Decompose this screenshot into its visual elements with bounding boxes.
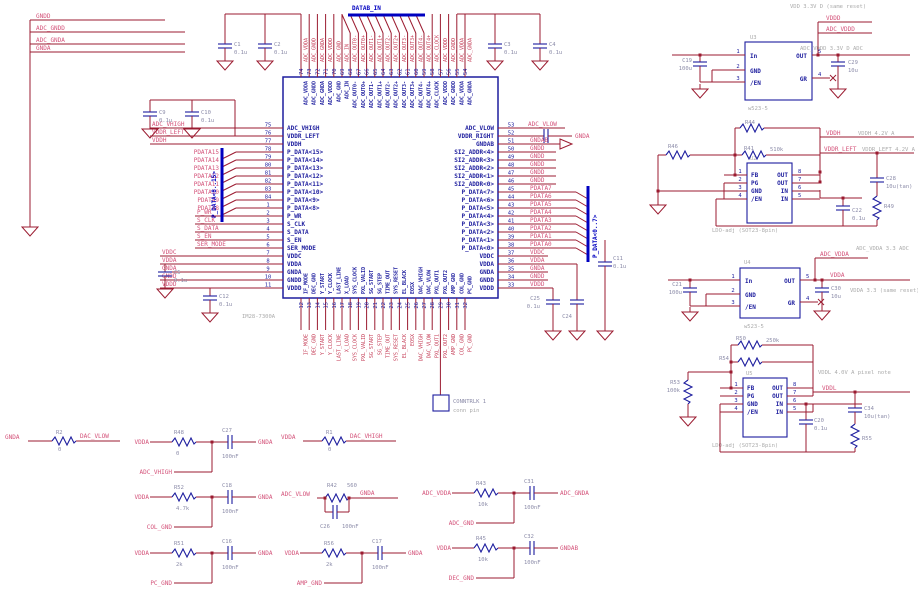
note: ADC_VDDD 3.3V D ADC: [800, 46, 863, 52]
ground-symbol: [184, 129, 200, 138]
ground-symbol: [217, 61, 233, 70]
net-label: Y_START: [320, 334, 326, 355]
value: 100nF: [524, 505, 541, 511]
resistor[interactable]: [52, 437, 76, 445]
net-label: VDDA: [135, 439, 150, 446]
pin-name: FB: [747, 385, 755, 392]
net-label: SYS_CLOCK: [353, 334, 359, 361]
net-label: PDATA5: [530, 201, 552, 208]
net-label: PDATA15: [194, 149, 220, 156]
resistor[interactable]: [684, 380, 692, 404]
pin-name: ADC_OUT0-: [353, 81, 359, 108]
ground-symbol: [487, 61, 503, 70]
pin-name: ADC_OUT0+: [361, 81, 367, 108]
pin-name: ADC_GND: [336, 81, 342, 102]
refdes: C10: [201, 110, 211, 116]
pin-name: OUT: [772, 393, 783, 400]
pin-number: 23: [389, 302, 395, 309]
net-label: PDATA6: [530, 193, 552, 200]
pin-number: 68: [348, 68, 354, 75]
resistor[interactable]: [172, 438, 196, 446]
pin-number: 3: [738, 185, 741, 191]
net-label: VDDA: [135, 494, 150, 501]
pin-name: SI2_ADDR<1>: [454, 173, 494, 180]
net-label: GNDD: [36, 13, 51, 20]
note: VDDL 4.0V A pixel note: [818, 370, 891, 376]
refdes: C18: [222, 483, 232, 489]
pin-number: 2: [734, 390, 737, 396]
pin-number: 46: [508, 179, 515, 185]
pin-number: 82: [265, 179, 272, 185]
refdes: C26: [320, 524, 330, 530]
net-label: DAC_VHIGH: [350, 433, 383, 440]
refdes: C12: [219, 294, 229, 300]
pin-name: ADC_VDDA: [459, 81, 465, 105]
net-label: TIME_OUT: [386, 334, 392, 358]
pin-name: EL_BLACK: [402, 270, 408, 294]
wire: [400, 15, 408, 33]
pin-name: P_DATA<13>: [287, 165, 324, 172]
net-label: ADC_OUT4+: [427, 35, 433, 62]
net-label: PDATA7: [530, 185, 552, 192]
pin-number: 70: [332, 68, 338, 75]
net-label: PDATA2: [530, 225, 552, 232]
pin-number: 61: [406, 68, 412, 75]
pin-name: GR: [800, 76, 808, 83]
net-label: VDDH: [152, 137, 167, 144]
net-label: GNDA: [360, 490, 375, 497]
pin-number: 52: [508, 131, 515, 137]
value: 0.1u: [613, 264, 626, 270]
net-label: DAC_VLOW: [80, 433, 109, 440]
pin-number: 71: [324, 68, 330, 75]
pin-number: 48: [508, 163, 515, 169]
net-label: PDATA13: [194, 165, 220, 172]
pin-number: 76: [265, 131, 272, 137]
value: 510k: [770, 147, 784, 153]
pin-name: GNDA: [287, 269, 302, 276]
ground-symbol: [157, 289, 173, 298]
pin-name: ADC_OUT4-: [418, 81, 424, 108]
pin-name: PC_GND: [468, 276, 474, 294]
net-label: ADC_VDDA: [820, 251, 849, 258]
refdes: C9: [159, 110, 166, 116]
net-label: SYS_RESET: [394, 334, 400, 361]
value: 100nF: [222, 565, 239, 571]
value: 10u: [831, 294, 841, 300]
pin-number: 66: [365, 68, 371, 75]
pin-name: IN: [781, 188, 789, 195]
pin-name: ADC_VHIGH: [287, 125, 320, 132]
net-label: ADC_VDDD: [328, 38, 334, 62]
pin-name: SI2_ADDR<0>: [454, 181, 494, 188]
pin-number: 5: [798, 193, 801, 199]
schematic-sheet: GNDDADC_GNDDADC_GNDAGNDAC10.1uC20.1uC30.…: [0, 0, 918, 607]
pin-number: 25: [406, 302, 412, 309]
pin-number: 56: [447, 68, 453, 75]
value: 0: [58, 447, 61, 453]
ic-right-pins: 53ADC_VLOWADC_VLOW52VDDR_RIGHTGNDA51GNDA…: [454, 121, 626, 340]
pin-number: 18: [348, 302, 354, 309]
connector[interactable]: [433, 395, 449, 411]
refdes: R41: [744, 146, 754, 152]
net-label: PXL_OUT2: [443, 334, 449, 358]
pin-number: 10: [265, 275, 272, 281]
regulator-a[interactable]: U3w523-51In2GND3/EN5OUT4GRC19100uC2910uV…: [672, 4, 910, 112]
value: 10k: [478, 557, 489, 563]
net-label: PC_GND: [150, 580, 172, 587]
resistor[interactable]: [325, 494, 349, 502]
pin-number: 7: [793, 390, 796, 396]
value: 0.1u: [174, 278, 187, 284]
net-label: ADC_GNDA: [320, 38, 326, 62]
pin-name: ADC_GNDD: [312, 81, 318, 105]
refdes: C22: [852, 208, 862, 214]
pin-number: 9: [266, 267, 269, 273]
pin-number: 1: [736, 49, 739, 55]
resistor[interactable]: [738, 341, 762, 349]
pin-number: 51: [508, 139, 515, 145]
pin-name: VDDD: [480, 285, 495, 292]
resistor[interactable]: [172, 493, 196, 501]
refdes: R46: [668, 144, 678, 150]
pin-number: 1: [731, 274, 734, 280]
refdes: C34: [864, 406, 875, 412]
refdes: C17: [372, 539, 382, 545]
pin-name: SYS_CLOCK: [353, 267, 359, 294]
refdes: C11: [613, 256, 623, 262]
net-label: GNDA: [258, 439, 273, 446]
pin-number: 63: [389, 68, 395, 75]
net-label: GNDD: [530, 153, 545, 160]
wire: [367, 15, 375, 33]
wire: [350, 15, 358, 33]
value: 0.1u: [549, 50, 562, 56]
ic-left-pins: 75ADC_VHIGHADC_VHIGH76VDDR_LEFTVDDR_LEFT…: [142, 100, 324, 322]
resistor[interactable]: [322, 437, 346, 445]
refdes: C3: [504, 42, 511, 48]
pin-name: In: [750, 53, 758, 60]
pin-name: P_DATA<9>: [287, 197, 320, 204]
refdes: C20: [814, 418, 824, 424]
pin-name: VDDR_RIGHT: [458, 133, 495, 140]
ground-symbol: [22, 227, 38, 236]
junction: [730, 387, 733, 390]
pin-number: 69: [340, 68, 346, 75]
junction: [734, 174, 737, 177]
ic-part-number: IM28-7300A: [242, 314, 276, 320]
refdes: C2: [274, 42, 281, 48]
pin-name: S_EN: [287, 237, 302, 244]
net-label: SG_START: [369, 334, 375, 358]
pin-number: 27: [422, 302, 428, 309]
net-label: ADC_VDDD: [826, 26, 855, 33]
refdes: R56: [324, 541, 334, 547]
net-label: ADC_GNDA: [560, 490, 589, 497]
resistor[interactable]: [666, 151, 690, 159]
net-label: VDDA: [162, 257, 177, 264]
pin-number: 3: [734, 398, 737, 404]
pin-number: 5: [806, 274, 809, 280]
pin-name: DEC_GND: [312, 273, 318, 294]
wire: [408, 15, 416, 33]
net-label: COL_GND: [459, 334, 465, 355]
refdes: R44: [745, 120, 756, 126]
value: 10u: [848, 68, 858, 74]
net-label: DAC_VLOW: [427, 333, 433, 358]
wire: [576, 216, 588, 223]
pin-number: 39: [508, 235, 515, 241]
wire: [416, 15, 424, 33]
bus-label: DATAB_IN: [352, 5, 381, 12]
pin-name: EOSX: [410, 282, 416, 294]
pin-name: VDDC: [480, 253, 495, 260]
net-label: VDDA: [285, 550, 300, 557]
pin-name: IF_MODE: [304, 273, 310, 294]
net-label: AMP_GND: [297, 580, 323, 587]
pin-number: 11: [265, 283, 272, 289]
wire: [222, 176, 236, 183]
net-label: P_WR: [197, 209, 212, 216]
net-label: VDDC: [162, 249, 177, 256]
pin-number: 22: [381, 302, 387, 309]
refdes: C21: [672, 282, 682, 288]
rc-networks: GNDAR20DAC_VLOWVDDAR10DAC_VHIGHADC_VLOWR…: [5, 428, 589, 587]
pin-name: GND: [747, 401, 758, 408]
net-label: ADC_CLOCK: [435, 35, 441, 62]
net-label: ADC_OUT1-: [369, 35, 375, 62]
pin-name: DAC_VHIGH: [418, 267, 424, 294]
wire: [222, 152, 236, 159]
net-label: X_LOAD: [345, 334, 351, 352]
value: 0: [176, 451, 179, 457]
net-flag: [560, 139, 572, 149]
pin-number: 84: [265, 195, 272, 201]
regulator-b[interactable]: U2LDO-adj (SOT23-8pin)1FB2PG3GND4/EN8OUT…: [650, 120, 916, 234]
ground-symbol: [692, 89, 708, 98]
net-label: PDATA1: [530, 233, 552, 240]
refdes: C19: [682, 58, 692, 64]
net-label: GNDD: [530, 169, 545, 176]
resistor[interactable]: [851, 424, 859, 448]
pin-name: /EN: [750, 80, 761, 87]
refdes: U3: [750, 35, 757, 41]
refdes: C5: [174, 270, 181, 276]
pin-name: GND: [751, 188, 762, 195]
pin-number: 4: [734, 406, 738, 412]
pin-number: 38: [508, 243, 515, 249]
net-label: ADC_VDDA: [459, 38, 465, 62]
pin-number: 43: [508, 203, 515, 209]
value: 0.1u: [159, 118, 172, 124]
pin-number: 21: [373, 302, 379, 309]
wire: [222, 192, 236, 199]
pin-number: 15: [324, 302, 330, 309]
net-label: ADC_GNDD: [36, 25, 65, 32]
net-label: VDDR_LEFT: [824, 146, 857, 153]
resistor[interactable]: [474, 489, 498, 497]
resistor[interactable]: [322, 549, 346, 557]
junction: [730, 371, 733, 374]
refdes: C31: [524, 479, 534, 485]
pin-number: 81: [265, 171, 272, 177]
resistor[interactable]: [738, 358, 762, 366]
pin-number: 37: [508, 251, 515, 257]
pin-name: DAC_VLOW: [427, 269, 433, 294]
net-label: GNDD: [530, 177, 545, 184]
refdes: R55: [862, 436, 872, 442]
resistor[interactable]: [873, 196, 881, 220]
pin-number: 2: [731, 288, 734, 294]
pin-number: 54: [463, 68, 469, 75]
value: 0.1u: [219, 302, 232, 308]
net-label: S_DATA: [197, 225, 219, 232]
pin-name: GNDA: [480, 269, 495, 276]
pin-name: ADC_OUT1-: [369, 81, 375, 108]
pin-name: P_DATA<1>: [461, 237, 494, 244]
net-label: GNDA: [575, 133, 590, 140]
pin-number: 30: [447, 302, 453, 309]
pin-name: /EN: [745, 304, 756, 311]
value: 2k: [326, 562, 333, 568]
pin-name: ADC_OUT3+: [410, 81, 416, 108]
refdes: R43: [476, 481, 486, 487]
pin-name: ADC_GNDA: [320, 81, 326, 105]
note: ADC_VDDA 3.3 ADC: [856, 246, 909, 252]
pin-name: ADC_GNDA: [468, 81, 474, 105]
part: LDO-adj (SOT23-8pin): [712, 443, 778, 449]
value: 10u(tan): [886, 184, 913, 190]
pin-name: P_WR: [287, 213, 302, 220]
pin-name: P_DATA<8>: [287, 205, 320, 212]
net-label: DEC_GND: [312, 334, 318, 355]
value: 100k: [667, 388, 681, 394]
net-label: ADC_VHIGH: [139, 469, 172, 476]
pin-name: ADC_OUT2-: [386, 81, 392, 108]
regulator-d[interactable]: U5LDO-adj (SOT23-8pin)1FB2PG3GND4/EN8OUT…: [667, 336, 910, 452]
net-label: ADC_OUT2+: [394, 35, 400, 62]
value: 4.7k: [176, 506, 190, 512]
wire: [222, 168, 236, 175]
connector-sub: conn pin: [453, 408, 480, 414]
value: 0.1u: [201, 118, 214, 124]
net-label: PDATA3: [530, 217, 552, 224]
pin-number: 67: [356, 68, 362, 75]
value: 0: [328, 447, 331, 453]
note: VDDH 4.2V A: [858, 131, 895, 137]
wire: [576, 224, 588, 231]
pin-number: 7: [798, 177, 801, 183]
wire: [383, 15, 391, 33]
pin-number: 8: [266, 259, 269, 265]
resistor[interactable]: [172, 549, 196, 557]
net-label: ADC_VDDA: [304, 38, 310, 62]
pin-name: FB: [751, 172, 759, 179]
net-label: VDDA: [437, 545, 452, 552]
note: VDDA 3.3 (same reset): [850, 288, 918, 294]
pin-number: 7: [266, 251, 269, 257]
pin-name: P_DATA<7>: [461, 189, 494, 196]
pin-name: OUT: [777, 172, 788, 179]
pin-name: VDDA: [287, 261, 302, 268]
pin-name: GND: [745, 292, 756, 299]
pin-name: PXL_OUT2: [443, 270, 449, 294]
ground-symbol: [682, 312, 698, 321]
pin-number: 12: [299, 302, 305, 309]
pin-name: P_DATA<4>: [461, 213, 494, 220]
pin-number: 2: [738, 177, 741, 183]
net-label: VDDL: [822, 385, 837, 392]
pin-number: 55: [455, 68, 461, 75]
ground-symbol: [830, 89, 846, 98]
pin-number: 13: [307, 302, 313, 309]
net-label: PXL_OUT1: [435, 334, 441, 358]
pin-name: PXL_VALID: [361, 267, 367, 294]
pin-name: ADC_CLOCK: [435, 81, 441, 108]
pin-name: Y_CLOCK: [328, 273, 334, 294]
pin-name: /EN: [747, 409, 758, 416]
pin-number: 4: [806, 296, 810, 302]
pin-number: 65: [373, 68, 379, 75]
net-label: ADC_GNDD: [451, 38, 457, 62]
value: 10u(tan): [864, 414, 891, 420]
pin-name: P_DATA<3>: [461, 221, 494, 228]
net-label: ADC_VDDD: [443, 38, 449, 62]
pin-number: 6: [266, 243, 269, 249]
pin-number: 32: [463, 302, 469, 309]
pin-number: 8: [798, 169, 801, 175]
pin-number: 50: [508, 147, 515, 153]
refdes: R1: [326, 430, 333, 436]
wire: [576, 248, 588, 255]
value: 100nF: [222, 509, 239, 515]
pin-name: VDDC: [287, 253, 302, 260]
pin-number: 59: [422, 68, 428, 75]
pin-number: 6: [798, 185, 801, 191]
net-label: VDDD: [826, 15, 841, 22]
refdes: R48: [174, 430, 184, 436]
pin-number: 5: [266, 235, 269, 241]
net-label: AMP_GND: [451, 334, 457, 355]
regulator-c[interactable]: U4w523-51In2GND3/EN5OUT4GRC21100uADC_VDD…: [668, 246, 918, 330]
refdes: C28: [886, 176, 896, 182]
net-label: ADC_VLOW: [281, 491, 310, 498]
value: 0.1u: [814, 426, 827, 432]
net-label: ADC_OUT3-: [402, 35, 408, 62]
pin-name: IN: [776, 409, 784, 416]
net-label: ADC_OUT1+: [377, 35, 383, 62]
pin-number: 16: [332, 302, 338, 309]
resistor[interactable]: [474, 544, 498, 552]
pin-number: 33: [508, 283, 515, 289]
pin-name: VDDD: [287, 285, 302, 292]
pin-name: Y_START: [320, 273, 326, 294]
net-label: ADC_VLOW: [528, 121, 557, 128]
pin-number: 60: [414, 68, 420, 75]
pin-number: 34: [508, 275, 515, 281]
refdes: C25: [530, 296, 540, 302]
pin-number: 26: [414, 302, 420, 309]
pin-name: AMP_GND: [451, 273, 457, 294]
pin-name: VDDA: [480, 261, 495, 268]
pin-number: 78: [265, 147, 272, 153]
net-label: DEC_GND: [449, 575, 475, 582]
pin-name: X_LOAD: [345, 276, 351, 294]
net-label: GNDAB: [530, 137, 548, 144]
pin-name: OUT: [796, 53, 807, 60]
pin-name: IN: [776, 401, 784, 408]
pin-name: ADC_OUT4+: [427, 81, 433, 108]
